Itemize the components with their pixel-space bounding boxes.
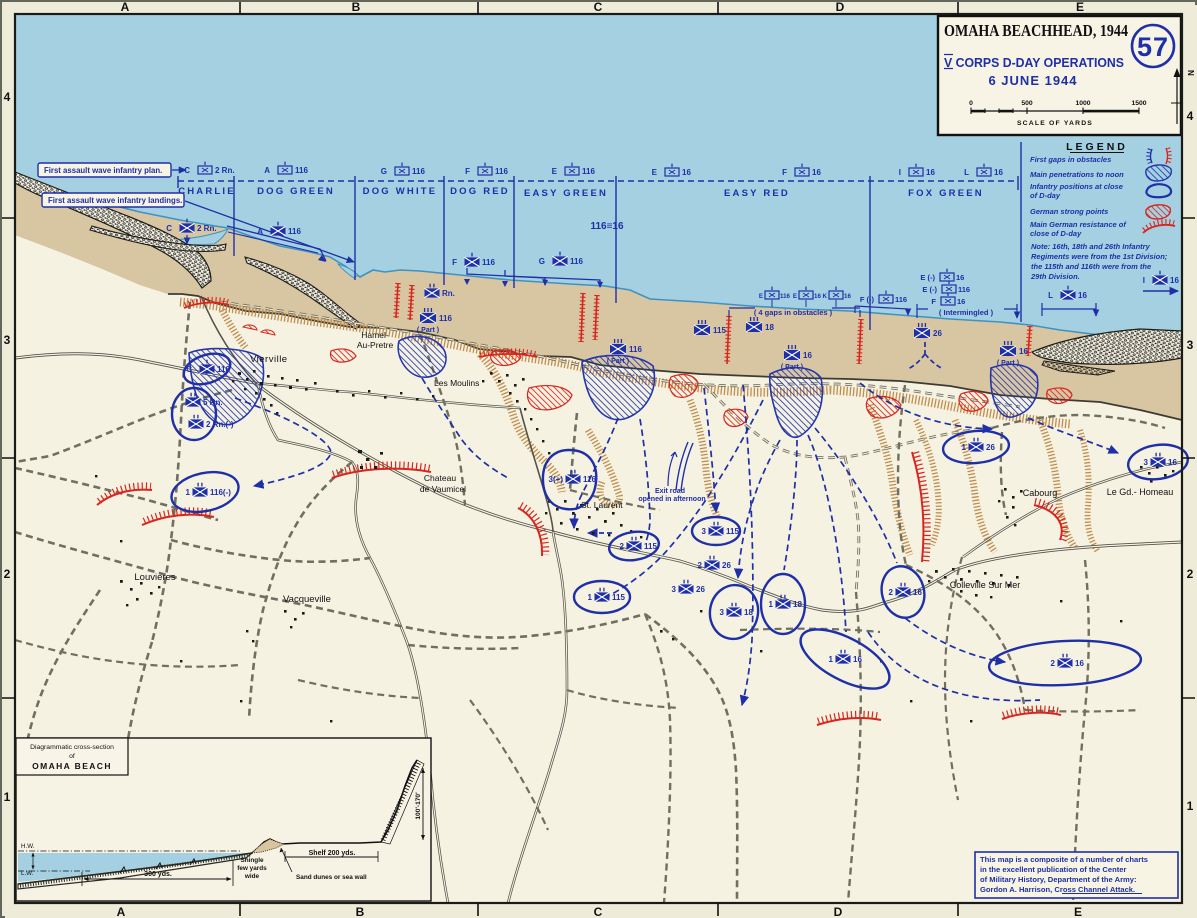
svg-text:1500: 1500 (1131, 100, 1146, 107)
svg-text:L.W.: L.W. (21, 870, 34, 877)
svg-text:wide: wide (244, 873, 260, 880)
svg-text:29th Division.: 29th Division. (1030, 272, 1080, 281)
svg-text:( Part ): ( Part ) (781, 364, 803, 371)
svg-text:E (-): E (-) (920, 273, 935, 282)
svg-text:Infantry positions at close: Infantry positions at close (1030, 182, 1123, 191)
svg-text:6 JUNE 1944: 6 JUNE 1944 (988, 73, 1077, 88)
svg-text:116: 116 (439, 314, 452, 323)
svg-text:few yards: few yards (237, 865, 267, 872)
svg-text:3: 3 (702, 527, 707, 536)
svg-text:26: 26 (933, 329, 942, 338)
svg-text:Main penetrations to noon: Main penetrations to noon (1030, 170, 1124, 179)
svg-text:L: L (964, 168, 969, 177)
svg-text:500: 500 (1021, 100, 1033, 107)
svg-text:16: 16 (1078, 291, 1087, 300)
svg-text:Hamel-: Hamel- (361, 330, 389, 340)
svg-text:G: G (381, 167, 387, 176)
svg-text:First assault wave infantry pl: First assault wave infantry plan. (44, 166, 162, 175)
svg-text:Le Gd.- Homeau: Le Gd.- Homeau (1107, 487, 1174, 497)
svg-text:16: 16 (814, 293, 821, 300)
svg-text:in the excellent publication o: in the excellent publication of the Cent… (980, 865, 1126, 874)
svg-text:of D-day: of D-day (1030, 191, 1061, 200)
svg-text:( Part ): ( Part ) (417, 327, 439, 334)
svg-text:of: of (69, 753, 75, 760)
svg-text:16: 16 (926, 168, 935, 177)
svg-text:Colleville Sur Mer: Colleville Sur Mer (950, 580, 1021, 590)
svg-text:E: E (652, 168, 658, 177)
svg-text:Diagrammatic cross-section: Diagrammatic cross-section (30, 744, 114, 751)
svg-text:57: 57 (1137, 32, 1169, 62)
svg-text:116: 116 (495, 167, 508, 176)
svg-text:300 yds.: 300 yds. (144, 871, 172, 878)
svg-text:( Part ): ( Part ) (997, 360, 1019, 367)
svg-text:SCALE OF YARDS: SCALE OF YARDS (1017, 120, 1093, 127)
svg-text:Rn.: Rn. (442, 289, 455, 298)
svg-text:N: N (1186, 70, 1195, 76)
svg-text:3: 3 (1144, 458, 1149, 467)
svg-text:DOG RED: DOG RED (450, 186, 510, 197)
svg-text:Regiments were from the 1st Di: Regiments were from the 1st Division; (1031, 252, 1168, 261)
svg-text:This map is a composite of a n: This map is a composite of a number of c… (980, 855, 1148, 864)
svg-text:of Military History, Departmen: of Military History, Department of the A… (980, 875, 1137, 884)
svg-text:Chateau: Chateau (424, 473, 456, 483)
svg-text:OMAHA BEACH: OMAHA BEACH (32, 761, 112, 771)
svg-text:A: A (121, 0, 130, 14)
svg-text:St. Laurent: St. Laurent (581, 500, 623, 510)
svg-text:( Part ): ( Part ) (607, 358, 629, 365)
svg-text:1: 1 (1187, 799, 1194, 813)
svg-text:Gordon A. Harrison, Cross Chan: Gordon A. Harrison, Cross Channel Attack… (980, 885, 1135, 894)
svg-text:OMAHA BEACHHEAD, 1944: OMAHA BEACHHEAD, 1944 (944, 21, 1128, 40)
svg-text:16: 16 (994, 168, 1003, 177)
svg-text:E: E (1076, 0, 1084, 14)
svg-text:18: 18 (744, 608, 753, 617)
svg-text:First gaps in obstacles: First gaps in obstacles (1030, 155, 1111, 164)
svg-text:CHARLIE: CHARLIE (178, 186, 236, 197)
svg-text:FOX GREEN: FOX GREEN (908, 188, 984, 199)
svg-text:de Vaumicel: de Vaumicel (420, 484, 466, 494)
svg-text:3: 3 (720, 608, 725, 617)
svg-text:115: 115 (713, 326, 726, 335)
svg-text:116: 116 (582, 167, 595, 176)
svg-text:26: 26 (696, 585, 705, 594)
svg-text:A: A (117, 905, 126, 918)
svg-text:close of D-day: close of D-day (1030, 229, 1082, 238)
svg-text:2: 2 (4, 567, 11, 581)
svg-text:F: F (452, 258, 457, 267)
svg-text:DOG GREEN: DOG GREEN (257, 186, 335, 197)
svg-text:116: 116 (958, 285, 970, 294)
svg-text:3: 3 (1187, 338, 1194, 352)
svg-text:116: 116 (780, 293, 791, 300)
svg-text:D: D (834, 905, 843, 918)
svg-text:4: 4 (1187, 109, 1194, 123)
svg-text:16: 16 (682, 168, 691, 177)
svg-text:16: 16 (1170, 276, 1179, 285)
svg-text:16: 16 (812, 168, 821, 177)
svg-text:E: E (759, 293, 763, 300)
svg-text:3: 3 (672, 585, 677, 594)
svg-text:L: L (1048, 291, 1053, 300)
svg-text:C: C (594, 905, 603, 918)
svg-text:4: 4 (4, 90, 11, 104)
svg-text:( 4 gaps in obstacles ): ( 4 gaps in obstacles ) (754, 308, 833, 317)
svg-text:K: K (823, 293, 828, 300)
svg-text:1: 1 (4, 790, 11, 804)
svg-text:18: 18 (765, 323, 774, 332)
svg-text:16: 16 (1075, 659, 1084, 668)
svg-text:Main German resistance of: Main German resistance of (1030, 220, 1127, 229)
svg-text:opened in afternoon: opened in afternoon (638, 496, 705, 503)
svg-text:B: B (352, 0, 361, 14)
svg-text:1: 1 (588, 593, 593, 602)
svg-text:Les Moulins: Les Moulins (434, 378, 479, 388)
svg-text:1: 1 (962, 443, 967, 452)
svg-text:1: 1 (829, 655, 834, 664)
svg-text:C: C (186, 365, 192, 374)
svg-text:Shingle: Shingle (240, 857, 264, 864)
svg-text:2: 2 (1187, 567, 1194, 581)
svg-text:D: D (836, 0, 845, 14)
svg-text:2: 2 (620, 542, 625, 551)
svg-text:Vacqueville: Vacqueville (283, 594, 331, 605)
svg-text:116: 116 (895, 295, 907, 304)
svg-text:116(-): 116(-) (210, 488, 231, 497)
svg-text:C: C (166, 224, 172, 233)
svg-text:B: B (356, 905, 365, 918)
svg-text:2 Rn.: 2 Rn. (215, 166, 235, 175)
svg-text:16: 16 (853, 655, 862, 664)
svg-text:2: 2 (698, 561, 703, 570)
svg-text:2: 2 (1051, 659, 1056, 668)
svg-text:German strong points: German strong points (1030, 207, 1108, 216)
svg-text:F: F (782, 168, 787, 177)
svg-text:2: 2 (889, 588, 894, 597)
svg-text:LEGEND: LEGEND (1066, 141, 1128, 153)
svg-text:16: 16 (957, 297, 965, 306)
svg-text:16: 16 (803, 351, 812, 360)
svg-text:( Intermingled ): ( Intermingled ) (939, 308, 994, 317)
svg-text:116: 116 (288, 227, 301, 236)
svg-text:116: 116 (629, 345, 642, 354)
svg-text:A: A (264, 166, 270, 175)
svg-text:Sand dunes or sea wall: Sand dunes or sea wall (296, 874, 367, 881)
svg-text:G: G (539, 257, 545, 266)
svg-text:1: 1 (769, 600, 774, 609)
svg-text:116: 116 (583, 475, 596, 484)
svg-text:0: 0 (969, 100, 973, 107)
svg-text:16: 16 (956, 273, 964, 282)
svg-text:16: 16 (1019, 347, 1028, 356)
svg-text:3: 3 (4, 333, 11, 347)
svg-text:Exit road: Exit road (655, 488, 685, 495)
svg-text:115: 115 (726, 527, 739, 536)
svg-text:F (-): F (-) (860, 295, 875, 304)
svg-text:I: I (899, 168, 901, 177)
svg-text:116: 116 (482, 258, 495, 267)
svg-text:116: 116 (295, 166, 308, 175)
svg-text:I: I (1143, 276, 1145, 285)
svg-text:the 115th and 116th were from: the 115th and 116th were from the (1031, 262, 1151, 271)
svg-text:F: F (931, 297, 936, 306)
svg-text:116: 116 (570, 257, 583, 266)
svg-text:116≡16: 116≡16 (590, 221, 624, 232)
svg-text:E: E (1074, 905, 1082, 918)
svg-text:26: 26 (722, 561, 731, 570)
svg-text:18: 18 (793, 600, 802, 609)
svg-text:116: 116 (217, 365, 230, 374)
svg-text:First assault wave infantry la: First assault wave infantry landings. (48, 196, 182, 205)
svg-text:V CORPS D-DAY OPERATIONS: V CORPS D-DAY OPERATIONS (944, 55, 1124, 70)
svg-text:16: 16 (1168, 458, 1177, 467)
svg-text:Cabourg: Cabourg (1023, 488, 1058, 498)
svg-text:100'-170': 100'-170' (415, 792, 422, 820)
svg-text:16: 16 (913, 588, 922, 597)
svg-text:26: 26 (986, 443, 995, 452)
svg-text:Note: 16th, 18th and 26th Infa: Note: 16th, 18th and 26th Infantry (1031, 242, 1151, 251)
svg-text:115: 115 (644, 542, 657, 551)
svg-text:Louvieres: Louvieres (134, 572, 175, 583)
svg-text:1000: 1000 (1075, 100, 1090, 107)
svg-text:Au-Pretre: Au-Pretre (357, 340, 394, 350)
svg-text:115: 115 (612, 593, 625, 602)
svg-text:H.W.: H.W. (21, 843, 35, 850)
svg-text:Shelf 200 yds.: Shelf 200 yds. (309, 850, 356, 857)
svg-text:E: E (793, 293, 797, 300)
svg-text:16: 16 (844, 293, 851, 300)
svg-text:1: 1 (186, 488, 191, 497)
svg-text:DOG WHITE: DOG WHITE (363, 186, 438, 197)
svg-text:116: 116 (412, 167, 425, 176)
svg-text:F: F (465, 167, 470, 176)
svg-text:Vierville: Vierville (250, 354, 288, 365)
svg-text:C: C (594, 0, 603, 14)
svg-text:E (-): E (-) (922, 285, 937, 294)
svg-text:EASY RED: EASY RED (724, 188, 790, 199)
svg-text:EASY GREEN: EASY GREEN (524, 188, 608, 199)
svg-text:3(+): 3(+) (549, 475, 564, 484)
svg-text:2 Rn.: 2 Rn. (197, 224, 217, 233)
svg-text:5 Rn.: 5 Rn. (203, 398, 223, 407)
svg-text:2 Rn.(-): 2 Rn.(-) (206, 420, 234, 429)
svg-text:E: E (552, 167, 558, 176)
